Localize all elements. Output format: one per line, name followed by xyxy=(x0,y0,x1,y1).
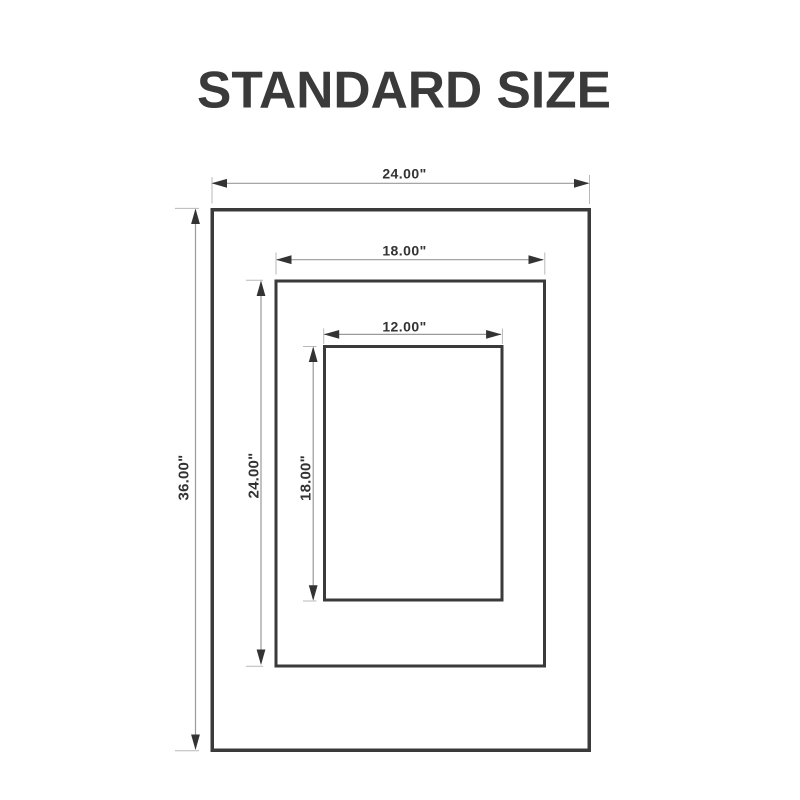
svg-text:STANDARD SIZE: STANDARD SIZE xyxy=(197,61,611,119)
svg-text:24.00": 24.00" xyxy=(246,453,263,499)
svg-text:12.00": 12.00" xyxy=(382,319,426,335)
svg-text:18.00": 18.00" xyxy=(382,243,426,259)
svg-text:36.00": 36.00" xyxy=(176,455,193,501)
svg-text:24.00": 24.00" xyxy=(382,166,426,182)
svg-text:18.00": 18.00" xyxy=(298,455,315,501)
